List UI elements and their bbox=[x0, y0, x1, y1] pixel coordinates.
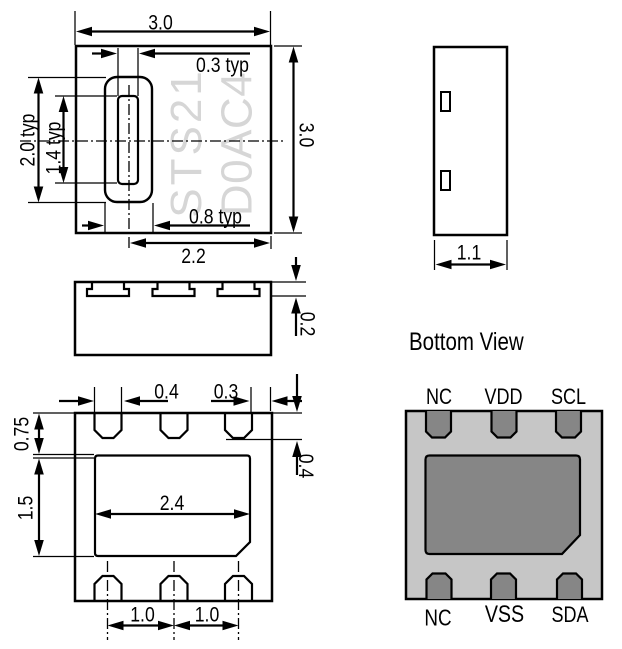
svg-text:1.0: 1.0 bbox=[195, 603, 220, 627]
svg-text:2.0 typ: 2.0 typ bbox=[16, 113, 40, 166]
svg-text:0.4: 0.4 bbox=[154, 380, 179, 404]
svg-text:VSS: VSS bbox=[485, 600, 524, 627]
svg-text:VDD: VDD bbox=[484, 385, 522, 409]
svg-text:2.2: 2.2 bbox=[181, 244, 206, 268]
svg-text:2.4: 2.4 bbox=[160, 491, 185, 515]
svg-text:1.4 typ: 1.4 typ bbox=[42, 121, 66, 174]
svg-text:SCL: SCL bbox=[551, 385, 586, 409]
svg-text:NC: NC bbox=[424, 606, 451, 631]
svg-text:1.1: 1.1 bbox=[457, 241, 482, 265]
svg-text:STS21: STS21 bbox=[162, 68, 211, 218]
svg-text:0.2: 0.2 bbox=[295, 312, 319, 337]
svg-text:1.0: 1.0 bbox=[130, 603, 155, 627]
svg-text:0.8 typ: 0.8 typ bbox=[189, 205, 242, 229]
svg-text:3.0: 3.0 bbox=[294, 123, 318, 148]
svg-text:0.3: 0.3 bbox=[214, 380, 239, 404]
svg-text:0.75: 0.75 bbox=[10, 417, 34, 451]
svg-text:0.3 typ: 0.3 typ bbox=[196, 53, 249, 77]
svg-text:SDA: SDA bbox=[551, 603, 589, 627]
svg-text:3.0: 3.0 bbox=[148, 11, 173, 35]
svg-text:1.5: 1.5 bbox=[14, 496, 38, 521]
svg-text:Bottom View: Bottom View bbox=[409, 327, 524, 355]
svg-text:NC: NC bbox=[426, 385, 452, 409]
svg-text:0.4: 0.4 bbox=[294, 454, 318, 479]
svg-text:D0AC4: D0AC4 bbox=[213, 72, 262, 216]
